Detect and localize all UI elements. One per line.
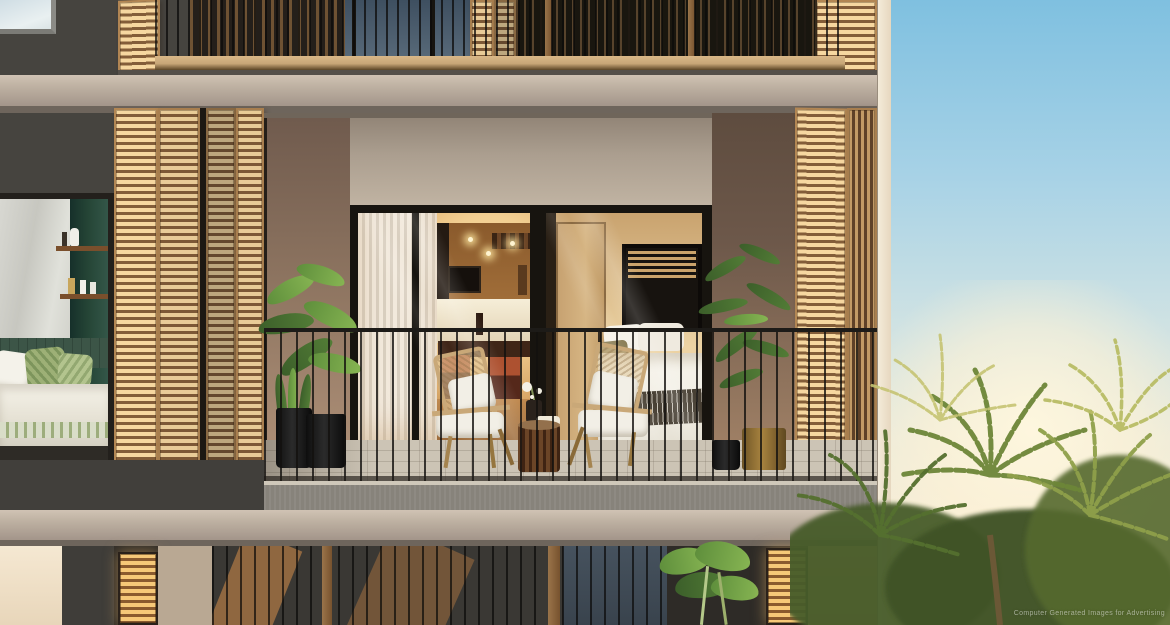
decor-diffuser	[62, 232, 67, 246]
decor-bottle	[68, 278, 75, 294]
left-unit-interior	[0, 198, 110, 460]
lower-cream-wall	[0, 546, 62, 625]
upper-railing-base	[155, 56, 845, 70]
wall-shelf	[56, 246, 110, 251]
balcony-railing-bars	[264, 331, 877, 481]
railing-top-rail	[264, 328, 877, 332]
palm-frond	[724, 312, 769, 326]
lower-post	[322, 546, 332, 625]
palm-trees	[790, 325, 1170, 625]
lower-glowing-shutter	[118, 552, 158, 625]
upper-window	[0, 0, 56, 34]
wall-shelf	[60, 294, 110, 299]
lower-mullions	[212, 546, 667, 625]
pillow-leaf-print	[57, 353, 94, 388]
palm-frond	[738, 240, 783, 268]
decor-box	[84, 224, 98, 246]
left-window-frame-top	[0, 193, 115, 199]
decor-tube	[90, 282, 96, 294]
upper-open-shutter	[118, 0, 160, 76]
palm-frond	[702, 251, 748, 284]
bamboo-plant	[655, 546, 775, 625]
architectural-rendering: Computer Generated Images for Advertisin…	[0, 0, 1170, 625]
palm-frond	[744, 278, 793, 313]
floor-slab-lower	[0, 510, 890, 540]
floor-slab-upper	[0, 75, 890, 106]
lower-dark-panel	[62, 546, 114, 625]
lower-post	[548, 546, 560, 625]
watermark-text: Computer Generated Images for Advertisin…	[1014, 610, 1165, 617]
decor-vase	[70, 228, 79, 246]
lower-taupe-wall	[158, 546, 212, 625]
bed-base-shadow	[0, 446, 110, 460]
decor-tube	[80, 280, 86, 294]
lower-glazing	[212, 546, 667, 625]
bed-throw	[0, 422, 110, 438]
left-unit-lower-band	[0, 460, 264, 510]
